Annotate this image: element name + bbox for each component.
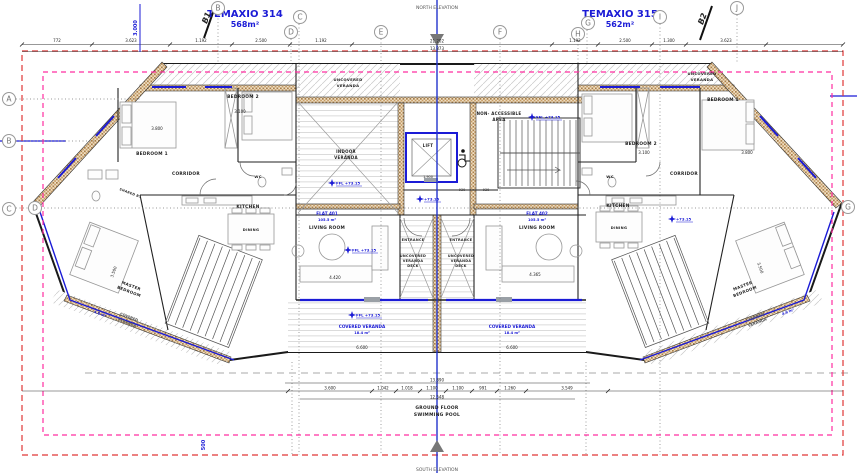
- uncovered-veranda-topleft: UNCOVERED VERANDA: [333, 77, 362, 88]
- svg-text:FFL +73.15: FFL +73.15: [352, 248, 376, 253]
- svg-text:1.192: 1.192: [315, 38, 327, 43]
- svg-text:COVERED VERANDA: COVERED VERANDA: [489, 324, 536, 329]
- svg-text:1.100: 1.100: [426, 386, 438, 391]
- svg-text:3.623: 3.623: [720, 38, 732, 43]
- svg-text:1.042: 1.042: [377, 386, 389, 391]
- svg-text:VERANDA: VERANDA: [403, 259, 424, 263]
- room-wc-left: WC: [254, 174, 262, 179]
- svg-text:DECK: DECK: [455, 264, 467, 268]
- room-bedroom2-left: BEDROOM 2: [227, 94, 259, 100]
- south-arrow-icon: [430, 440, 444, 452]
- svg-text:13.890: 13.890: [430, 378, 444, 383]
- south-elevation-label: SOUTH ELEVATION: [416, 467, 458, 473]
- grid-e: E: [379, 28, 384, 37]
- svg-text:+73.15: +73.15: [676, 217, 692, 222]
- svg-text:6.600: 6.600: [506, 345, 518, 350]
- room-bedroom1-right: BEDROOM 1: [707, 97, 739, 103]
- svg-text:VERANDA: VERANDA: [451, 259, 472, 263]
- svg-text:13.873: 13.873: [430, 46, 444, 51]
- grid-a: A: [6, 95, 12, 104]
- room-corridor-left: CORRIDOR: [172, 171, 200, 177]
- svg-text:UNCOVERED: UNCOVERED: [400, 254, 426, 258]
- svg-text:FFL +73.15: FFL +73.15: [356, 313, 380, 318]
- svg-text:3.100: 3.100: [234, 109, 246, 114]
- flat-right-area: 105.5 m²: [528, 218, 546, 222]
- non-accessible-2: AREA: [492, 117, 506, 122]
- svg-text:2.500: 2.500: [619, 38, 631, 43]
- room-living-left: LIVING ROOM: [309, 225, 345, 231]
- svg-text:1.018: 1.018: [401, 386, 413, 391]
- svg-text:3.800: 3.800: [741, 150, 753, 155]
- entrance-right: ENTRANCE: [450, 238, 473, 242]
- svg-text:3.100: 3.100: [638, 150, 650, 155]
- unit-right-area: 562m²: [606, 20, 635, 29]
- svg-text:1.192: 1.192: [195, 38, 207, 43]
- room-dining-left: DINING: [243, 228, 259, 232]
- room-bedroom1-left: BEDROOM 1: [136, 151, 168, 157]
- grid-i: I: [659, 13, 661, 22]
- svg-text:SWIMMING POOL: SWIMMING POOL: [414, 412, 460, 418]
- room-corridor-right: CORRIDOR: [670, 171, 698, 177]
- svg-text:UNCOVERED: UNCOVERED: [687, 71, 716, 76]
- svg-text:UNCOVERED: UNCOVERED: [333, 77, 362, 82]
- dim-3000-blue: 3.000: [133, 20, 139, 36]
- flat-left-name: FLAT 401: [316, 211, 338, 216]
- grid-d-left: D: [32, 204, 38, 213]
- section-b2-label: B2: [696, 11, 709, 25]
- grid-j: J: [735, 4, 738, 13]
- svg-text:1.260: 1.260: [504, 386, 516, 391]
- indoor-veranda-label: INDOOR VERANDA: [334, 149, 358, 160]
- svg-text:12.548: 12.548: [430, 395, 444, 400]
- svg-text:DECK: DECK: [407, 264, 419, 268]
- svg-text:930: 930: [459, 188, 465, 192]
- grid-c-left: C: [6, 205, 11, 214]
- svg-text:3.549: 3.549: [561, 386, 573, 391]
- grid-c-top: C: [297, 13, 302, 22]
- north-elevation-label: NORTH ELEVATION: [416, 5, 458, 11]
- svg-text:VERANDA: VERANDA: [691, 77, 714, 82]
- room-lift: LIFT: [423, 143, 434, 148]
- svg-text:1.900: 1.900: [423, 175, 433, 179]
- svg-text:930: 930: [483, 188, 489, 192]
- svg-text:4.365: 4.365: [529, 272, 541, 277]
- room-living-right: LIVING ROOM: [519, 225, 555, 231]
- svg-text:VERANDA: VERANDA: [334, 155, 358, 160]
- uncovered-veranda-topright: UNCOVERED VERANDA: [687, 71, 716, 82]
- non-accessible-1: NON- ACCESSIBLE: [477, 111, 522, 116]
- flat-left-area: 105.5 m²: [318, 218, 336, 222]
- svg-text:+73.15: +73.15: [424, 197, 440, 202]
- svg-text:3.623: 3.623: [125, 38, 137, 43]
- svg-text:1.300: 1.300: [663, 38, 675, 43]
- unit-left-area: 568m²: [231, 20, 260, 29]
- unit-right-title: TEMAXIO 315: [582, 9, 658, 20]
- svg-text:1.192: 1.192: [569, 38, 581, 43]
- svg-text:18.4 m²: 18.4 m²: [504, 331, 520, 335]
- floor-plan-svg: TEMAXIO 314 568m² TEMAXIO 315 562m² NORT…: [0, 0, 857, 473]
- svg-text:2.500: 2.500: [255, 38, 267, 43]
- room-dining-right: DINING: [611, 226, 627, 230]
- svg-text:INDOOR: INDOOR: [336, 149, 356, 154]
- svg-text:21.202: 21.202: [430, 39, 444, 44]
- svg-text:FFL +73.15: FFL +73.15: [336, 181, 360, 186]
- room-kitchen-left: KITCHEN: [236, 204, 259, 210]
- svg-text:COVERED VERANDA: COVERED VERANDA: [339, 324, 386, 329]
- svg-text:6.600: 6.600: [356, 345, 368, 350]
- svg-text:1.100: 1.100: [452, 386, 464, 391]
- svg-text:GROUND FLOOR: GROUND FLOOR: [415, 405, 459, 411]
- svg-text:991: 991: [479, 386, 487, 391]
- grid-b-top: B: [215, 4, 220, 13]
- svg-text:3.800: 3.800: [151, 126, 163, 131]
- svg-text:772: 772: [53, 38, 61, 43]
- svg-text:4.420: 4.420: [329, 275, 341, 280]
- svg-text:FFL +73.15: FFL +73.15: [536, 115, 560, 120]
- grid-b-left: B: [6, 137, 11, 146]
- room-kitchen-right: KITCHEN: [606, 203, 629, 209]
- grid-g-top: G: [585, 19, 591, 28]
- entrance-left: ENTRANCE: [402, 238, 425, 242]
- floor-plan-page: TEMAXIO 314 568m² TEMAXIO 315 562m² NORT…: [0, 0, 857, 473]
- grid-g-right: G: [845, 203, 851, 212]
- room-wc-right: WC: [606, 174, 614, 179]
- flat-right-name: FLAT 402: [526, 211, 548, 216]
- svg-text:3.600: 3.600: [324, 386, 336, 391]
- svg-text:18.4 m²: 18.4 m²: [354, 331, 370, 335]
- dim-500-blue: 500: [201, 439, 207, 450]
- grid-d-top: D: [288, 28, 294, 37]
- svg-text:UNCOVERED: UNCOVERED: [448, 254, 474, 258]
- grid-f: F: [498, 28, 502, 37]
- room-bedroom2-right: BEDROOM 2: [625, 141, 657, 147]
- svg-text:VERANDA: VERANDA: [337, 83, 360, 88]
